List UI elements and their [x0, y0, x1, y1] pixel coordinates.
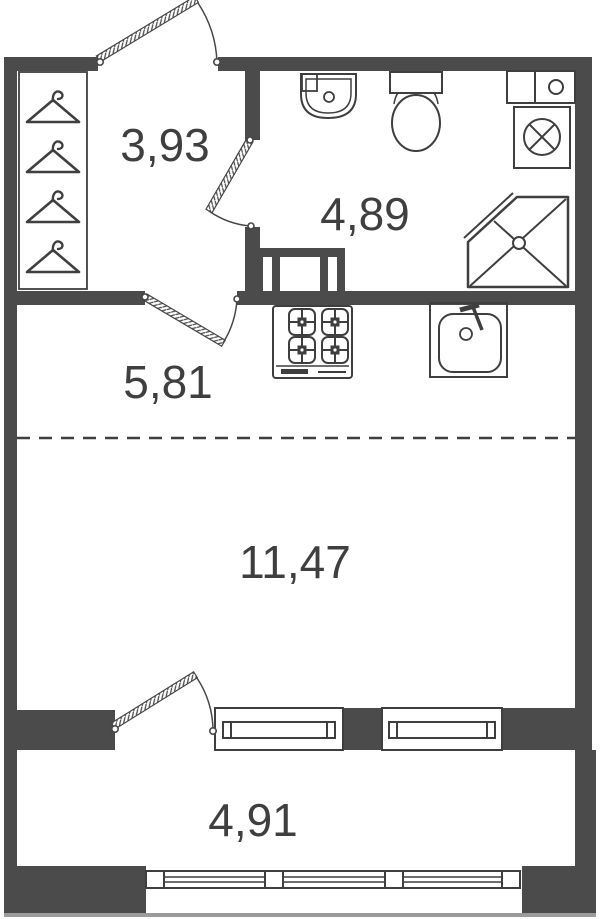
wardrobe-area-label: 3,93 — [120, 119, 210, 171]
closet-outline — [19, 72, 87, 289]
wall-balcony-right — [575, 750, 596, 868]
walls — [4, 57, 596, 913]
hanger-icon — [27, 141, 79, 172]
balcony-glazing-icon — [146, 871, 520, 888]
entrance-door-icon — [96, 0, 220, 65]
window-icon — [215, 708, 343, 750]
stove-burner — [289, 337, 315, 363]
floor-plan-svg: 3,93 — [0, 0, 600, 919]
wardrobe-room — [19, 72, 87, 289]
wall-right — [575, 57, 592, 750]
wall-left — [4, 57, 17, 868]
wall-wardrobe-bottom — [4, 291, 145, 305]
hanger-icon — [27, 191, 79, 222]
transom-window-icon — [255, 248, 345, 291]
interior-door-icon — [142, 294, 240, 346]
kitchen-hall — [273, 303, 507, 378]
wall-wardrobe-bathroom-upper — [245, 71, 260, 140]
wall-top-right — [218, 57, 592, 71]
stove-burner — [289, 309, 315, 335]
floor-plan: 3,93 — [0, 0, 600, 919]
kitchen-hall-area-label: 5,81 — [123, 356, 213, 408]
hanger-icon — [27, 241, 79, 272]
wall-window-right — [502, 708, 592, 750]
wall-balcony-top-left — [17, 710, 115, 750]
balcony-outer-edge — [4, 913, 596, 917]
living-room-area-label: 11,47 — [239, 536, 351, 588]
wall-balcony-block-right — [522, 866, 596, 913]
stove-burner — [322, 337, 348, 363]
balcony-door-icon — [111, 672, 216, 734]
bathroom-area-label: 4,89 — [320, 188, 410, 240]
water-heater-icon — [507, 71, 575, 103]
kitchen-sink-icon — [430, 303, 507, 377]
stove-burner — [322, 309, 348, 335]
gas-stove-icon — [273, 306, 352, 378]
wall-bathroom-bottom — [237, 291, 592, 305]
hanger-icon — [27, 91, 79, 122]
interior-door-icon — [206, 137, 254, 229]
wash-basin-icon — [301, 74, 356, 118]
wall-window-pier — [343, 708, 382, 750]
balcony-area-label: 4,91 — [208, 794, 298, 846]
wall-top-left — [4, 57, 98, 71]
wall-balcony-block-left — [4, 866, 146, 913]
window-icon — [382, 708, 502, 750]
toilet-icon — [390, 72, 442, 151]
corner-shower-icon — [464, 193, 568, 287]
washing-machine-icon — [514, 107, 570, 168]
